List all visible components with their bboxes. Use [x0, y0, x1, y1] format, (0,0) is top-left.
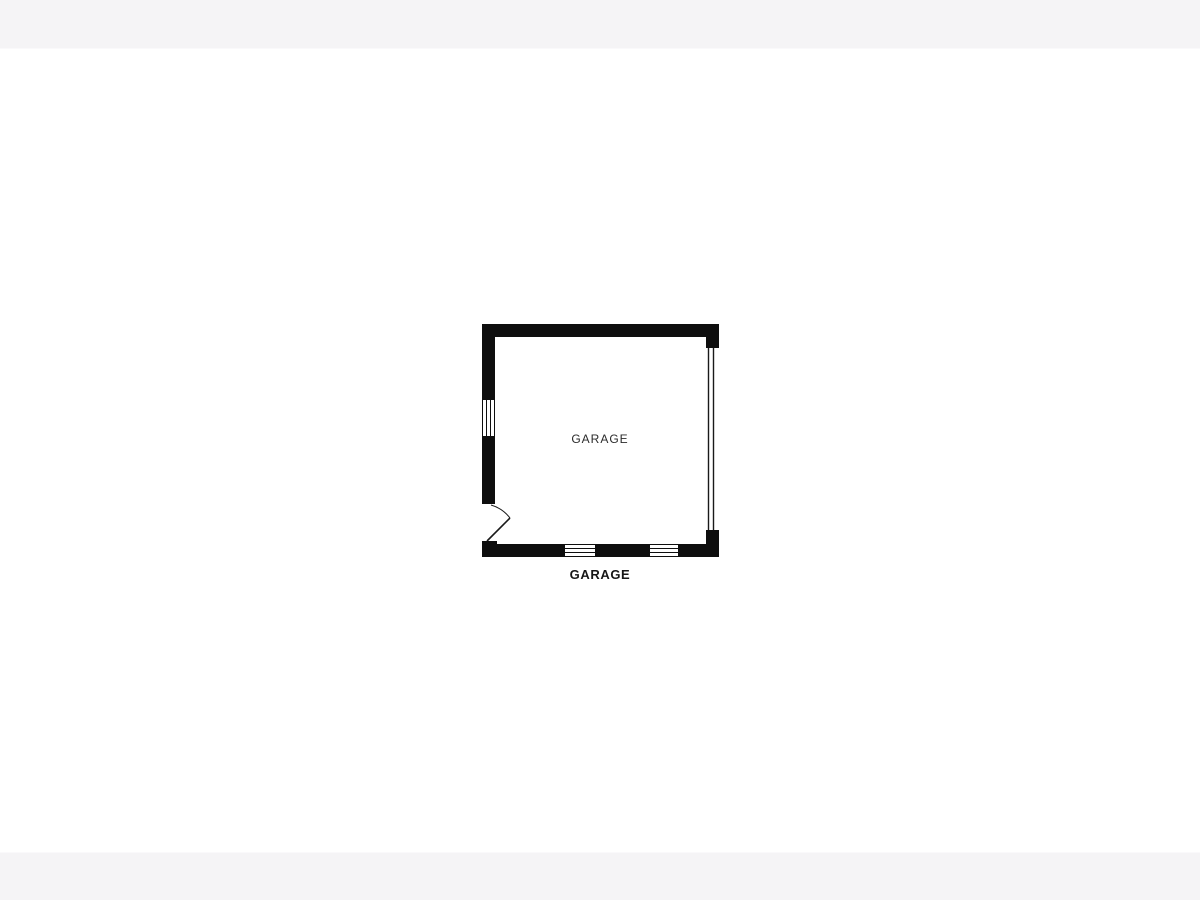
window-bottom-1	[565, 545, 595, 557]
top-band	[0, 0, 1200, 49]
floor-plan: GARAGE	[481, 322, 719, 558]
door-swing-arc	[491, 505, 510, 518]
plan-caption: GARAGE	[481, 567, 719, 582]
wall-top	[482, 324, 719, 337]
wall-corner-top-right	[706, 337, 719, 348]
wall-corner-bottom-right	[706, 530, 719, 557]
window-left	[483, 400, 495, 436]
wall-bottom-left	[482, 544, 565, 557]
page: GARAGE GARAGE	[0, 0, 1200, 900]
wall-left-lower	[482, 436, 495, 504]
room-label: GARAGE	[481, 432, 719, 446]
door-leaf	[487, 518, 510, 541]
bottom-band	[0, 852, 1200, 900]
wall-left-upper	[482, 324, 495, 400]
window-bottom-2	[650, 545, 678, 557]
wall-bottom-middle	[595, 544, 650, 557]
entry-door	[487, 505, 510, 541]
